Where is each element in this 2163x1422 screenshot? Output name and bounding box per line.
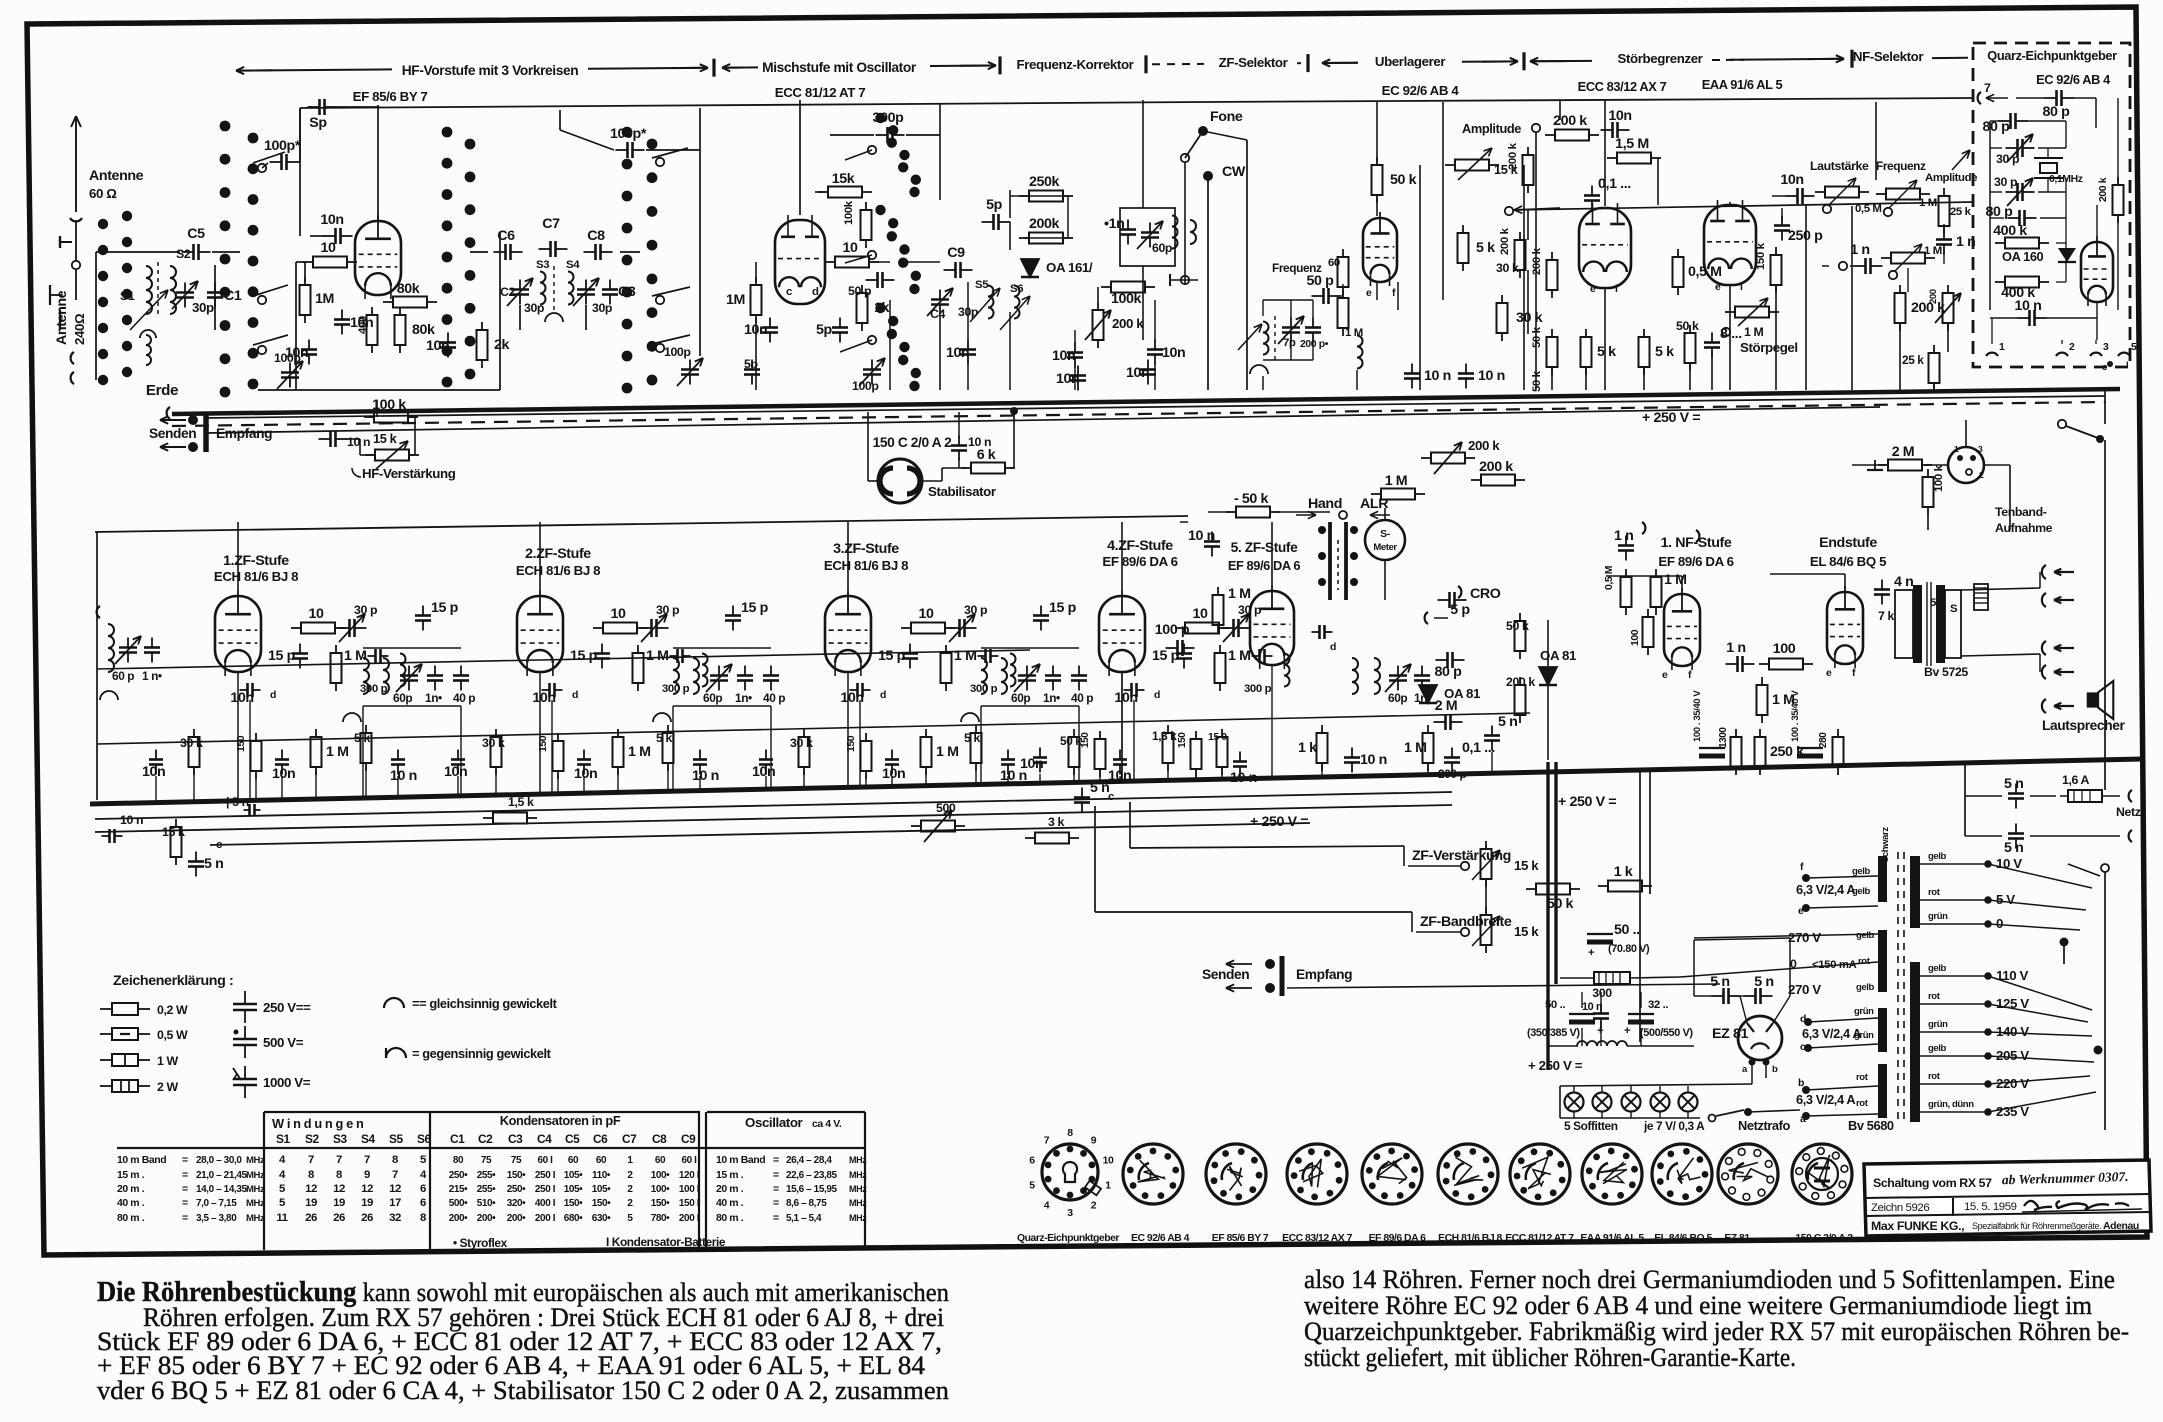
svg-text:10n: 10n <box>1780 172 1803 188</box>
svg-text:100p: 100p <box>852 379 879 393</box>
svg-text:Max FUNKE KG.,: Max FUNKE KG., <box>1871 1219 1964 1233</box>
svg-text:C7: C7 <box>542 216 560 232</box>
svg-text:15 p: 15 p <box>268 648 296 664</box>
svg-text:150•: 150• <box>651 1198 670 1209</box>
svg-text:C4: C4 <box>930 307 946 321</box>
svg-text:Endstufe: Endstufe <box>1819 535 1877 551</box>
svg-text:10: 10 <box>1103 1156 1114 1167</box>
svg-text:HF-Verstärkung: HF-Verstärkung <box>362 466 456 481</box>
svg-text:50 k: 50 k <box>1547 896 1574 912</box>
svg-text:235 V: 235 V <box>1996 1104 2029 1119</box>
svg-text:1 M: 1 M <box>1664 572 1687 588</box>
svg-text:10n: 10n <box>426 338 449 354</box>
svg-text:Schaltung vom RX 57: Schaltung vom RX 57 <box>1873 1176 1992 1190</box>
svg-text:5 V: 5 V <box>1996 892 2015 907</box>
svg-text:300: 300 <box>1592 986 1612 1000</box>
svg-text:150 C 2/0 A 2: 150 C 2/0 A 2 <box>1795 1233 1853 1244</box>
svg-text:Uberlagerer: Uberlagerer <box>1375 54 1445 69</box>
svg-text:10n: 10n <box>882 766 905 782</box>
svg-text:60 Ω: 60 Ω <box>89 186 117 201</box>
svg-text:30 p: 30 p <box>1996 152 2020 166</box>
svg-text:(70.80 V): (70.80 V) <box>1608 943 1650 955</box>
svg-text:32 ..: 32 .. <box>1648 999 1668 1011</box>
svg-text:5p: 5p <box>986 197 1003 213</box>
svg-text:2: 2 <box>627 1170 633 1181</box>
svg-text:C5: C5 <box>187 226 205 242</box>
svg-text:(500/550 V): (500/550 V) <box>1640 1027 1693 1039</box>
svg-text:200•: 200• <box>507 1213 526 1224</box>
svg-text:Sp: Sp <box>309 115 327 131</box>
svg-text:400 I: 400 I <box>535 1198 556 1209</box>
svg-text:6: 6 <box>1029 1156 1035 1167</box>
svg-text:+: + <box>1624 1025 1631 1037</box>
svg-text:10 n: 10 n <box>1230 770 1257 786</box>
svg-text:e: e <box>2102 362 2107 373</box>
svg-text:S4: S4 <box>361 1132 376 1146</box>
svg-text:80 p: 80 p <box>2043 104 2071 120</box>
svg-text:grün: grün <box>1928 1019 1948 1030</box>
svg-text:1n•: 1n• <box>1043 691 1060 705</box>
svg-text:5 n: 5 n <box>1754 974 1773 990</box>
svg-text:Quarz-Eichpunktgeber: Quarz-Eichpunktgeber <box>1987 48 2117 63</box>
svg-text:ca 4 V.: ca 4 V. <box>812 1119 842 1130</box>
svg-text:=: = <box>773 1213 779 1224</box>
svg-text:15 p: 15 p <box>431 600 459 616</box>
svg-text:22,6 – 23,85: 22,6 – 23,85 <box>786 1170 837 1181</box>
svg-text:5p: 5p <box>816 322 833 338</box>
svg-text:0,5 M: 0,5 M <box>1688 264 1722 280</box>
svg-text:200 k: 200 k <box>1479 459 1513 475</box>
svg-text:S2: S2 <box>305 1132 320 1146</box>
svg-text:40 p: 40 p <box>763 691 785 705</box>
svg-text:26: 26 <box>305 1212 317 1224</box>
svg-text:MHz: MHz <box>246 1184 265 1195</box>
svg-text:+ 250 V =: + 250 V = <box>1642 410 1700 426</box>
svg-text:S5: S5 <box>975 279 989 291</box>
svg-text:1 n: 1 n <box>1850 242 1869 258</box>
svg-text:1 M: 1 M <box>344 648 367 664</box>
svg-text:1 M: 1 M <box>1404 740 1427 756</box>
svg-text:ZF-Selektor: ZF-Selektor <box>1219 55 1288 70</box>
svg-text:7: 7 <box>392 1169 398 1181</box>
svg-text:MHz: MHz <box>246 1155 265 1166</box>
svg-text:c: c <box>786 286 792 298</box>
svg-text:Lautstärke: Lautstärke <box>1810 159 1869 173</box>
svg-text:6,3 V/2,4 A: 6,3 V/2,4 A <box>1796 1092 1855 1107</box>
svg-text:1 M: 1 M <box>1924 245 1942 257</box>
svg-text:2 M: 2 M <box>1892 444 1915 460</box>
svg-text:200: 200 <box>1928 289 1939 304</box>
svg-text:1 M: 1 M <box>1744 325 1763 339</box>
svg-text:EF 85/6 BY 7: EF 85/6 BY 7 <box>1212 1233 1269 1244</box>
svg-text:15 m .: 15 m . <box>117 1170 145 1181</box>
svg-text:MHz: MHz <box>849 1213 867 1223</box>
svg-text:=: = <box>182 1170 188 1181</box>
svg-text:150: 150 <box>1080 732 1091 748</box>
svg-text:630•: 630• <box>592 1213 611 1224</box>
svg-text:Zeichn 5926: Zeichn 5926 <box>1871 1202 1929 1214</box>
svg-text:60p: 60p <box>1388 691 1407 705</box>
svg-text:S3: S3 <box>536 259 549 271</box>
svg-text:HF-Vorstufe mit 3 Vorkreisen: HF-Vorstufe mit 3 Vorkreisen <box>402 63 578 78</box>
svg-text:2: 2 <box>627 1184 633 1195</box>
svg-text:250 I: 250 I <box>535 1170 556 1181</box>
svg-text:6: 6 <box>420 1183 426 1195</box>
svg-text:8: 8 <box>308 1169 314 1181</box>
svg-text:100k: 100k <box>1111 291 1142 307</box>
svg-text:d: d <box>572 690 578 701</box>
svg-text:15 k: 15 k <box>1514 924 1539 939</box>
svg-text:300 p: 300 p <box>1244 683 1272 695</box>
svg-text:10n: 10n <box>1056 371 1079 387</box>
svg-text:8: 8 <box>392 1154 398 1166</box>
svg-text:270 V: 270 V <box>1788 930 1821 945</box>
svg-text:150•: 150• <box>507 1170 526 1181</box>
svg-text:8,6 – 8,75: 8,6 – 8,75 <box>786 1198 827 1209</box>
svg-text:Bv 5680: Bv 5680 <box>1848 1118 1894 1133</box>
svg-text:80k: 80k <box>412 322 435 338</box>
svg-text:1 n: 1 n <box>1726 640 1745 656</box>
svg-text:3.ZF-Stufe: 3.ZF-Stufe <box>833 541 899 557</box>
svg-text:10: 10 <box>610 606 626 622</box>
svg-text:30 p: 30 p <box>1994 175 2018 189</box>
svg-text:11: 11 <box>276 1212 288 1224</box>
svg-text:3 k: 3 k <box>1048 815 1064 829</box>
svg-text:255•: 255• <box>477 1170 496 1181</box>
svg-text:EF 89/6 DA 6: EF 89/6 DA 6 <box>1102 554 1177 569</box>
svg-text:2: 2 <box>1091 1200 1097 1211</box>
svg-text:6,3 V/2,4 A: 6,3 V/2,4 A <box>1796 882 1855 897</box>
svg-text:5 n: 5 n <box>2004 776 2023 792</box>
svg-text:200 k: 200 k <box>1531 247 1543 275</box>
svg-text:3,5 – 3,80: 3,5 – 3,80 <box>196 1213 237 1224</box>
svg-text:MHz: MHz <box>849 1170 867 1180</box>
svg-text:20 m .: 20 m . <box>117 1184 145 1195</box>
svg-text:S2: S2 <box>176 247 191 261</box>
svg-text:C6: C6 <box>593 1132 608 1146</box>
svg-text:=: = <box>773 1198 779 1209</box>
svg-text:105•: 105• <box>564 1184 583 1195</box>
svg-text:Amplitude: Amplitude <box>1925 172 1977 184</box>
svg-text:200 k: 200 k <box>1112 316 1144 331</box>
svg-text:150 k: 150 k <box>1755 242 1767 270</box>
svg-text:1n•: 1n• <box>425 691 442 705</box>
svg-text:rot: rot <box>1856 1098 1869 1109</box>
svg-text:EL 84/6 BQ 5: EL 84/6 BQ 5 <box>1810 554 1887 569</box>
svg-text:Lautsprecher: Lautsprecher <box>2042 718 2125 733</box>
svg-text:3: 3 <box>1067 1208 1073 1219</box>
svg-text:40 p: 40 p <box>453 691 475 705</box>
svg-text:OA 160: OA 160 <box>2002 249 2044 264</box>
svg-text:EF 85/6 BY 7: EF 85/6 BY 7 <box>353 89 428 104</box>
svg-text:rot: rot <box>1928 991 1941 1002</box>
svg-text:e: e <box>1715 282 1721 293</box>
svg-text:100•: 100• <box>651 1184 670 1195</box>
svg-text:150•: 150• <box>564 1198 583 1209</box>
svg-text:150 I: 150 I <box>679 1198 700 1209</box>
svg-text:S5: S5 <box>389 1132 404 1146</box>
svg-text:100•: 100• <box>651 1170 670 1181</box>
svg-text:105•: 105• <box>592 1184 611 1195</box>
svg-text:•1n: •1n <box>1104 216 1124 232</box>
svg-text:0,5 W: 0,5 W <box>157 1028 188 1042</box>
svg-text:12: 12 <box>333 1183 345 1195</box>
svg-text:Amplitude: Amplitude <box>1462 121 1521 136</box>
svg-text:12: 12 <box>389 1183 401 1195</box>
svg-text:vder 6 BQ 5 + EZ 81 oder 6: vder 6 BQ 5 + EZ 81 oder 6 CA 4, + Stabi… <box>97 1375 949 1405</box>
svg-text:5 n: 5 n <box>204 856 223 872</box>
svg-text:120 I: 120 I <box>679 1170 700 1181</box>
svg-text:150: 150 <box>538 735 549 752</box>
svg-text:MHz: MHz <box>849 1155 867 1165</box>
svg-text:75: 75 <box>511 1155 522 1166</box>
svg-text:NF-Selektor: NF-Selektor <box>1853 49 1923 64</box>
svg-text:32: 32 <box>389 1212 401 1224</box>
svg-text:1 n•: 1 n• <box>142 669 162 683</box>
svg-text:75: 75 <box>481 1155 492 1166</box>
svg-text:10n: 10n <box>142 764 165 780</box>
svg-text:1n•: 1n• <box>735 691 752 705</box>
svg-text:100p*: 100p* <box>610 126 647 142</box>
svg-text:Bv 5725: Bv 5725 <box>1924 665 1968 679</box>
svg-text:1 M: 1 M <box>954 648 977 664</box>
svg-text:50 k: 50 k <box>1531 326 1543 348</box>
svg-text:Oscillator: Oscillator <box>745 1115 803 1130</box>
svg-text:ECH 81/6 BJ 8: ECH 81/6 BJ 8 <box>214 569 298 584</box>
svg-text:10n: 10n <box>1162 345 1185 361</box>
svg-text:60p: 60p <box>1011 691 1030 705</box>
svg-text:1,5 M: 1,5 M <box>1615 136 1649 152</box>
svg-text:9: 9 <box>1091 1136 1097 1147</box>
svg-text:Fone: Fone <box>1210 109 1243 125</box>
svg-text:15. 5. 1959: 15. 5. 1959 <box>1964 1201 2017 1213</box>
svg-text:ECH 81/6 BJ 8: ECH 81/6 BJ 8 <box>824 558 908 573</box>
svg-text:3: 3 <box>2103 342 2109 353</box>
svg-text:gelb: gelb <box>1928 1043 1947 1054</box>
svg-text:=: = <box>182 1213 188 1224</box>
svg-text:EC 92/6 AB 4: EC 92/6 AB 4 <box>1382 83 1460 98</box>
svg-text:15,6 – 15,95: 15,6 – 15,95 <box>786 1184 837 1195</box>
svg-text:5 n: 5 n <box>2004 840 2023 856</box>
svg-text:200 I: 200 I <box>679 1213 700 1224</box>
svg-text:Störbegrenzer: Störbegrenzer <box>1618 51 1703 66</box>
svg-text:2: 2 <box>1979 470 1984 480</box>
svg-text:gelb: gelb <box>1852 866 1871 877</box>
svg-text:2: 2 <box>2069 342 2075 353</box>
svg-text:=: = <box>182 1184 188 1195</box>
svg-text:510•: 510• <box>477 1198 496 1209</box>
svg-text:2k: 2k <box>494 337 510 353</box>
svg-text:Frequenz-Korrektor: Frequenz-Korrektor <box>1017 57 1134 72</box>
svg-text:19: 19 <box>305 1197 317 1209</box>
svg-text:30p: 30p <box>524 301 545 315</box>
svg-text:5: 5 <box>627 1213 633 1224</box>
svg-text:8: 8 <box>336 1169 342 1181</box>
svg-text:205 V: 205 V <box>1996 1048 2029 1063</box>
svg-text:3: 3 <box>1978 444 1983 454</box>
svg-text:Tenband-: Tenband- <box>1995 505 2047 519</box>
svg-text:7: 7 <box>1984 81 1991 95</box>
svg-text:C4: C4 <box>537 1132 552 1146</box>
svg-text:8: 8 <box>1067 1128 1073 1139</box>
svg-text:200 k: 200 k <box>2098 177 2109 202</box>
svg-text:1: 1 <box>627 1155 633 1166</box>
svg-text:1 k: 1 k <box>1298 740 1317 756</box>
svg-text:50 p: 50 p <box>1307 273 1335 289</box>
svg-text:50 ..: 50 .. <box>1545 999 1565 1011</box>
svg-text:300p: 300p <box>873 110 905 126</box>
svg-text:60p: 60p <box>1152 241 1173 255</box>
svg-text:=: = <box>773 1170 779 1181</box>
svg-text:=: = <box>773 1155 779 1166</box>
svg-text:0,2 W: 0,2 W <box>157 1003 188 1017</box>
svg-text:80 m .: 80 m . <box>716 1213 744 1224</box>
svg-text:1: 1 <box>1105 1180 1111 1191</box>
svg-text:(350/385 V): (350/385 V) <box>1527 1027 1580 1039</box>
svg-text:1000 V=: 1000 V= <box>263 1075 311 1090</box>
svg-text:110•: 110• <box>592 1170 611 1181</box>
svg-text:Empfang: Empfang <box>216 426 272 441</box>
svg-text:EZ 81: EZ 81 <box>1724 1233 1750 1244</box>
svg-text:1 M: 1 M <box>936 744 959 760</box>
svg-text:150•: 150• <box>592 1198 611 1209</box>
svg-text:15 p: 15 p <box>878 648 906 664</box>
svg-text:10 m Band: 10 m Band <box>716 1155 765 1166</box>
svg-text:60: 60 <box>655 1155 666 1166</box>
svg-text:6 k: 6 k <box>977 447 996 463</box>
svg-text:rot: rot <box>1858 956 1871 967</box>
svg-text:10 m Band: 10 m Band <box>117 1155 166 1166</box>
svg-text:0: 0 <box>1996 916 2003 931</box>
svg-text:5: 5 <box>2131 342 2137 353</box>
svg-text:80: 80 <box>453 1155 464 1166</box>
svg-text:60p: 60p <box>703 691 722 705</box>
svg-text:gelb: gelb <box>1856 982 1875 993</box>
svg-text:S1: S1 <box>276 1132 291 1146</box>
svg-text:200•: 200• <box>449 1213 468 1224</box>
svg-text:26,4 – 28,4: 26,4 – 28,4 <box>786 1155 832 1166</box>
svg-text:1 W: 1 W <box>157 1054 178 1068</box>
svg-text:8: 8 <box>420 1212 426 1224</box>
svg-text:4.ZF-Stufe: 4.ZF-Stufe <box>1107 538 1173 554</box>
svg-text:. ECC 81/12 AT 7: . ECC 81/12 AT 7 <box>1500 1233 1574 1244</box>
svg-text:105•: 105• <box>564 1170 583 1181</box>
svg-text:EF 89/6 DA 6: EF 89/6 DA 6 <box>1228 558 1301 573</box>
svg-text:15 p: 15 p <box>1049 600 1077 616</box>
svg-text:10: 10 <box>308 606 324 622</box>
svg-text:C9: C9 <box>947 245 965 261</box>
svg-text:C5: C5 <box>565 1132 580 1146</box>
svg-text:5: 5 <box>1029 1180 1035 1191</box>
svg-text:60 I: 60 I <box>681 1155 697 1166</box>
svg-text:5 n: 5 n <box>1090 780 1109 796</box>
svg-text:250k: 250k <box>1029 174 1060 190</box>
svg-text:+ 250 V =: + 250 V = <box>1250 814 1308 830</box>
svg-text:Frequenz: Frequenz <box>1876 159 1926 173</box>
svg-text:2.ZF-Stufe: 2.ZF-Stufe <box>525 546 591 562</box>
svg-text:250•: 250• <box>507 1184 526 1195</box>
svg-text:7: 7 <box>308 1154 314 1166</box>
svg-text:250 V==: 250 V== <box>263 1000 311 1015</box>
svg-text:10 n: 10 n <box>1360 752 1387 768</box>
svg-text:= gegensinnig gewickelt: = gegensinnig gewickelt <box>412 1046 552 1061</box>
svg-text:Hand: Hand <box>1308 496 1342 512</box>
svg-text:1 M: 1 M <box>1385 473 1408 489</box>
svg-text:Empfang: Empfang <box>1296 967 1352 982</box>
svg-text:rot: rot <box>1928 887 1941 898</box>
svg-text:b: b <box>1772 1064 1778 1075</box>
svg-text:10 n: 10 n <box>347 435 370 449</box>
svg-text:12: 12 <box>361 1183 373 1195</box>
svg-text:1. NF-Stufe: 1. NF-Stufe <box>1661 535 1732 551</box>
svg-text:80 p: 80 p <box>1435 664 1463 680</box>
svg-text:5 n: 5 n <box>1498 714 1517 730</box>
svg-text:0,1 ...: 0,1 ... <box>1462 740 1495 756</box>
svg-text:1 M: 1 M <box>1919 197 1937 209</box>
svg-text:MHz: MHz <box>246 1170 265 1181</box>
svg-text:EC 92/6 AB 4: EC 92/6 AB 4 <box>2036 72 2111 87</box>
svg-text:10 n: 10 n <box>120 813 143 827</box>
svg-text:5 Soffitten: 5 Soffitten <box>1564 1119 1618 1133</box>
svg-text:10n: 10n <box>752 764 775 780</box>
svg-text:40 m .: 40 m . <box>716 1198 744 1209</box>
svg-text:0,1 ...: 0,1 ... <box>1598 176 1631 192</box>
svg-text:6,3 V/2,4 A: 6,3 V/2,4 A <box>1802 1026 1861 1041</box>
svg-text:200 k: 200 k <box>1507 142 1519 170</box>
svg-text:100p: 100p <box>664 345 691 359</box>
svg-text:MHz: MHz <box>849 1198 867 1208</box>
svg-text:S4: S4 <box>566 259 580 271</box>
svg-text:Meter: Meter <box>1373 542 1397 553</box>
svg-text:60p: 60p <box>393 691 412 705</box>
svg-text:100: 100 <box>1630 629 1641 646</box>
svg-text:5 k: 5 k <box>1655 344 1674 360</box>
svg-text:1 k: 1 k <box>1614 864 1633 880</box>
svg-text:+ 250 V =: + 250 V = <box>1528 1058 1583 1073</box>
svg-text:W i n d u n g e n: W i n d u n g e n <box>272 1116 364 1131</box>
svg-text:100p*: 100p* <box>264 138 301 154</box>
svg-text:7,0 – 7,15: 7,0 – 7,15 <box>196 1198 237 1209</box>
svg-text:C3: C3 <box>508 1132 523 1146</box>
svg-text:10 n: 10 n <box>1188 528 1215 544</box>
svg-text:gelb: gelb <box>1856 930 1875 941</box>
svg-text:28,0 – 30,0: 28,0 – 30,0 <box>196 1155 242 1166</box>
svg-text:OA 81: OA 81 <box>1540 648 1577 663</box>
svg-text:1300: 1300 <box>1718 727 1729 748</box>
svg-text:30 p: 30 p <box>656 603 680 617</box>
svg-text:Adenau: Adenau <box>2103 1221 2139 1232</box>
svg-text:30 k: 30 k <box>1516 310 1543 326</box>
svg-text:Stabilisator: Stabilisator <box>928 484 996 499</box>
svg-text:OA 161/: OA 161/ <box>1046 260 1093 275</box>
svg-text:== gleichsinnig gewickelt: == gleichsinnig gewickelt <box>412 996 558 1011</box>
svg-text:780•: 780• <box>651 1213 670 1224</box>
svg-text:10 n: 10 n <box>2015 298 2042 314</box>
svg-text:250•: 250• <box>449 1170 468 1181</box>
svg-text:+ 250 V =: + 250 V = <box>1558 794 1616 810</box>
svg-text:10 n: 10 n <box>1582 1001 1602 1013</box>
svg-text:Antenne: Antenne <box>54 290 70 345</box>
svg-text:200 I: 200 I <box>535 1213 556 1224</box>
svg-text:EC 92/6 AB 4: EC 92/6 AB 4 <box>1131 1233 1190 1244</box>
svg-text:1 M: 1 M <box>1228 648 1251 664</box>
svg-text:10n: 10n <box>320 212 343 228</box>
svg-text:10: 10 <box>842 240 858 256</box>
svg-text:21,0 – 21,45: 21,0 – 21,45 <box>196 1170 247 1181</box>
svg-text:250 I: 250 I <box>535 1184 556 1195</box>
svg-text:gelb: gelb <box>1852 886 1871 897</box>
svg-text:e: e <box>1366 288 1372 299</box>
